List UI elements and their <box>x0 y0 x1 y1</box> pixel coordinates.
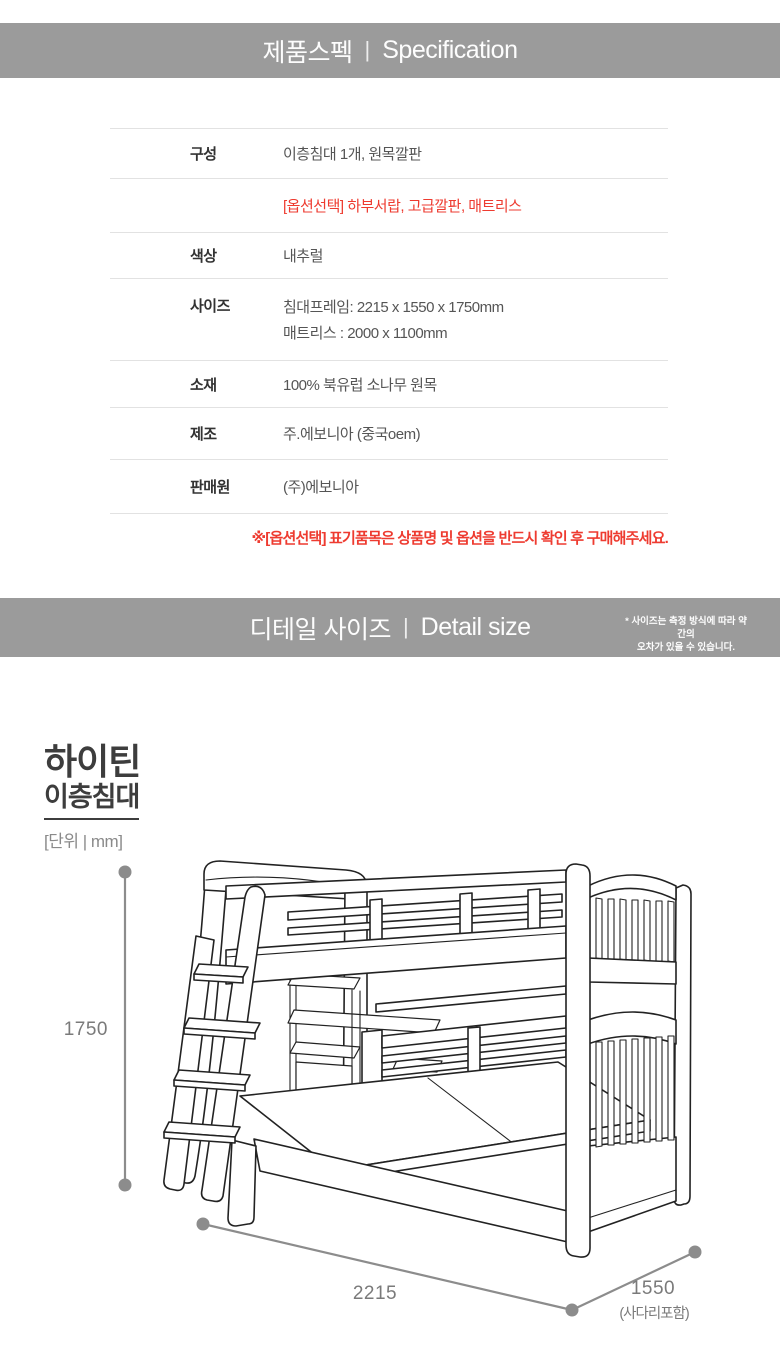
spec-banner-title-ko: 제품스펙 <box>263 33 353 69</box>
spec-banner-divider: | <box>365 37 371 63</box>
spec-label: 색상 <box>190 245 283 266</box>
footboard-lower-slats <box>596 1036 674 1147</box>
size-tolerance-note: * 사이즈는 측정 방식에 따라 약간의 오차가 있을 수 있습니다. <box>622 615 750 654</box>
footboard-top-rail <box>588 875 676 900</box>
lower-back-rail <box>376 986 566 1012</box>
height-dimension-label: 1750 <box>64 1019 108 1040</box>
table-row: 제조 주.에보니아 (중국oem) <box>110 407 668 459</box>
bunk-bed-drawing <box>164 861 691 1257</box>
detail-banner-title-en: Detail size <box>421 613 531 642</box>
front-left-leg <box>228 1140 256 1226</box>
size-tolerance-note-line1: * 사이즈는 측정 방식에 따라 약간의 <box>622 615 750 641</box>
footboard-left-post <box>566 864 590 1257</box>
spec-label: 판매원 <box>190 476 283 497</box>
detail-banner-title-ko: 디테일 사이즈 <box>250 610 391 646</box>
spec-label: 구성 <box>190 143 283 164</box>
spec-label: 사이즈 <box>190 295 283 316</box>
footboard-bottom-board <box>588 1137 676 1232</box>
spec-label: 소재 <box>190 374 283 395</box>
spec-value: 침대프레임: 2215 x 1550 x 1750mm 매트리스 : 2000 … <box>283 295 668 347</box>
footboard-upper-slats <box>596 898 674 962</box>
spec-table: 구성 이층침대 1개, 원목깔판 [옵션선택] 하부서랍, 고급깔판, 매트리스… <box>110 128 668 514</box>
depth-dimension-label: 1550 <box>631 1278 675 1299</box>
spec-value-line2: 매트리스 : 2000 x 1100mm <box>283 321 668 347</box>
lower-guard-spacer <box>468 1027 480 1073</box>
detail-banner-divider: | <box>403 614 409 640</box>
table-row: 판매원 (주)에보니아 <box>110 459 668 513</box>
table-row: 색상 내추럴 <box>110 232 668 278</box>
spec-value-option: [옵션선택] 하부서랍, 고급깔판, 매트리스 <box>283 195 668 216</box>
table-row: 구성 이층침대 1개, 원목깔판 <box>110 128 668 178</box>
spec-value: 주.에보니아 (중국oem) <box>283 423 668 444</box>
upper-side-rail <box>226 926 566 984</box>
spec-label: 제조 <box>190 423 283 444</box>
spec-value: 내추럴 <box>283 245 668 266</box>
option-warning-note: ※[옵션선택] 표기품목은 상품명 및 옵션을 반드시 확인 후 구매해주세요. <box>110 527 668 548</box>
detail-section-banner: 디테일 사이즈 | Detail size * 사이즈는 측정 방식에 따라 약… <box>0 598 780 657</box>
bunk-bed-diagram: 1750 2215 1550 (사다리포함) <box>0 660 780 1348</box>
spec-section-banner: 제품스펙 | Specification <box>0 23 780 78</box>
spec-value: (주)에보니아 <box>283 476 668 497</box>
spec-value-line1: 침대프레임: 2215 x 1550 x 1750mm <box>283 295 668 321</box>
length-dimension-label: 2215 <box>353 1283 397 1304</box>
table-row: [옵션선택] 하부서랍, 고급깔판, 매트리스 <box>110 178 668 232</box>
spec-value: 100% 북유럽 소나무 원목 <box>283 374 668 395</box>
size-tolerance-note-line2: 오차가 있을 수 있습니다. <box>622 641 750 654</box>
footboard-mid-rail <box>588 958 676 984</box>
spec-value: 이층침대 1개, 원목깔판 <box>283 143 668 164</box>
table-row: 사이즈 침대프레임: 2215 x 1550 x 1750mm 매트리스 : 2… <box>110 278 668 360</box>
depth-dimension-note: (사다리포함) <box>619 1305 689 1322</box>
table-row: 소재 100% 북유럽 소나무 원목 <box>110 360 668 407</box>
spec-banner-title-en: Specification <box>382 36 517 65</box>
